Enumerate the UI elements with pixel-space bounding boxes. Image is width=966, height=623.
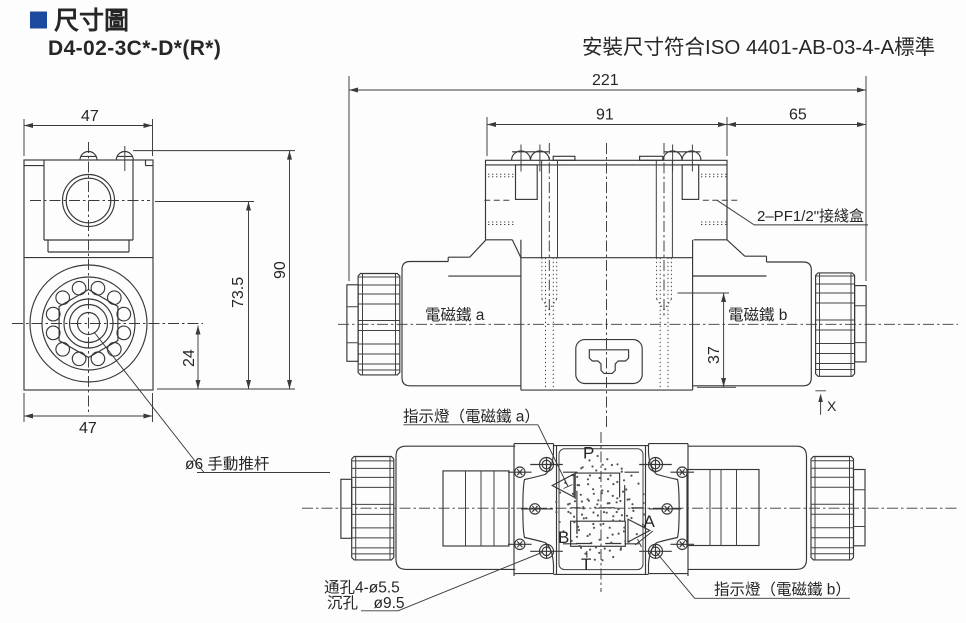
svg-text:電磁鐵 b: 電磁鐵 b xyxy=(728,305,787,324)
svg-text:91: 91 xyxy=(596,107,614,124)
svg-text:T: T xyxy=(581,555,591,574)
svg-text:90: 90 xyxy=(272,261,289,279)
svg-text:ø6 手動推杆: ø6 手動推杆 xyxy=(185,455,269,473)
svg-text:37: 37 xyxy=(706,346,723,364)
svg-text:尺寸圖: 尺寸圖 xyxy=(54,7,129,35)
svg-text:指示燈（電磁鐵 b）: 指示燈（電磁鐵 b） xyxy=(714,580,851,599)
svg-text:電磁鐵 a: 電磁鐵 a xyxy=(425,305,485,324)
svg-text:73.5: 73.5 xyxy=(230,277,247,308)
svg-text:B: B xyxy=(558,528,569,547)
svg-text:47: 47 xyxy=(79,420,97,437)
svg-text:通孔4-ø5.5: 通孔4-ø5.5 xyxy=(324,579,400,597)
svg-text:X: X xyxy=(827,398,837,414)
svg-text:D4-02-3C*-D*(R*): D4-02-3C*-D*(R*) xyxy=(48,37,221,60)
svg-text:指示燈（電磁鐵 a）: 指示燈（電磁鐵 a） xyxy=(403,407,540,426)
svg-text:65: 65 xyxy=(789,107,807,124)
svg-text:P: P xyxy=(583,444,594,463)
svg-text:2–PF1/2"接綫盒: 2–PF1/2"接綫盒 xyxy=(757,208,864,225)
svg-text:安裝尺寸符合ISO 4401-AB-03-4-A標準: 安裝尺寸符合ISO 4401-AB-03-4-A標準 xyxy=(582,36,935,59)
svg-text:24: 24 xyxy=(181,349,198,367)
svg-text:47: 47 xyxy=(81,108,99,125)
svg-text:沉孔 ø9.5: 沉孔 ø9.5 xyxy=(327,594,405,612)
svg-text:221: 221 xyxy=(592,72,619,89)
